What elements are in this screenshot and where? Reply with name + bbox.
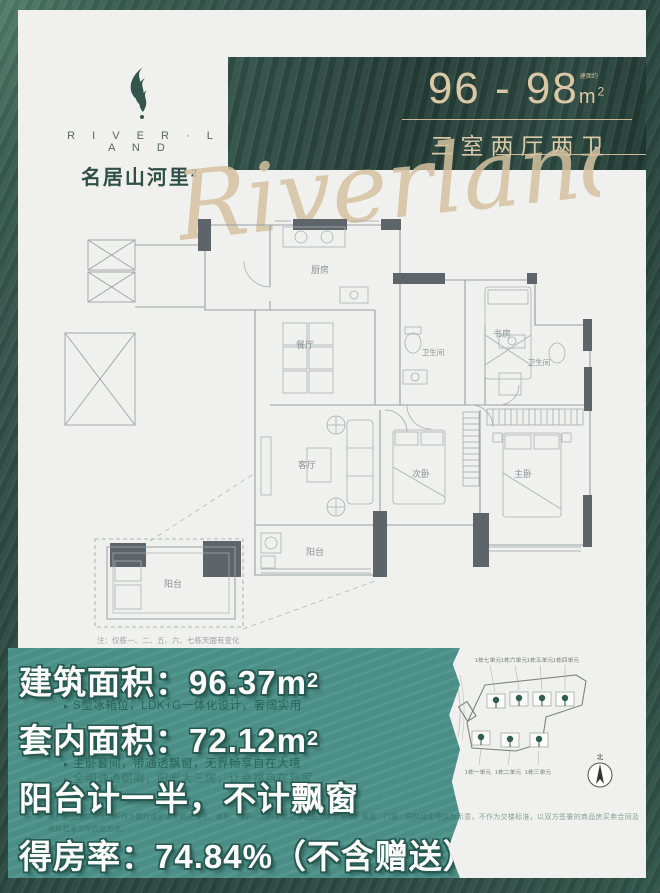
svg-text:北: 北 [597, 753, 604, 761]
unit-label: 1栋二单元 [495, 768, 522, 776]
room-label-living: 客厅 [298, 459, 316, 470]
area-unit: 建面约m2 [579, 86, 606, 108]
room-label-study: 书房 [493, 328, 511, 339]
room-label-kitchen: 厨房 [311, 264, 329, 275]
unit-label: 1栋六单元 [501, 656, 528, 664]
door-arcs [244, 261, 519, 432]
site-entrance [459, 702, 476, 722]
area-note: 建面约 [580, 74, 598, 80]
header-banner-content: 96 - 98建面约m2 三室两厅两卫 [402, 67, 632, 161]
stat-bullet-1: ▸S型冰箱位，LDK+G一体化设计，奢阔实用 [64, 697, 302, 713]
unit-label: 1栋一单元 [465, 768, 492, 776]
gold-divider-2 [496, 154, 646, 155]
site-road-2 [460, 675, 464, 740]
bullet-arrow-icon: ▸ [64, 701, 69, 711]
flame-leaf-icon [118, 66, 162, 124]
stat-bullet-2: ▸主卧套间，带通透飘窗，无界畅享自在大境 [64, 755, 301, 771]
room-label-master: 主卧 [514, 468, 532, 479]
gold-divider [402, 119, 632, 120]
stat-efficiency: 得房率：74.84%（不含赠送） [19, 830, 477, 878]
stats-panel: 建筑面积：96.37m2 ▸S型冰箱位，LDK+G一体化设计，奢阔实用 套内面积… [8, 648, 460, 878]
room-label-bedroom2: 次卧 [412, 468, 430, 479]
disclaimer: 本户型图仅供参考，不作为要约或承诺，相关尺寸、面积、布局以政府最终批准图纸为准；… [48, 812, 640, 836]
compass-icon: 北 [588, 753, 612, 787]
room-label-balcony: 阳台 [306, 546, 324, 557]
bullet-arrow-icon: ▸ [64, 759, 69, 769]
brand-name-cn: 名居山河里2 [50, 161, 230, 190]
wall-blocks [110, 219, 592, 577]
room-labels: 厨房 餐厅 卫生间 书房 卫生间 客厅 次卧 主卧 阳台 阳台 [164, 264, 550, 589]
header-banner: 96 - 98建面约m2 三室两厅两卫 [228, 57, 646, 170]
room-label-dining: 餐厅 [296, 339, 314, 350]
room-label-balcony-detail: 阳台 [164, 578, 182, 589]
poster: R I V E R · L A N D 名居山河里2 96 - 98建面约m2 … [0, 0, 660, 893]
unit-label: 1栋三单元 [525, 768, 552, 776]
room-label-bath1: 卫生间 [422, 347, 445, 357]
site-plan: 1栋七单元 1栋六单元 1栋五单元 1栋四单元 1栋一单元 1栋二单元 1栋三单… [448, 645, 653, 820]
brand-logo: R I V E R · L A N D 名居山河里2 [50, 66, 230, 190]
unit-label: 1栋七单元 [475, 656, 502, 664]
floorplan-note: 注：仅栋一、二、五、六、七栋天面有变化 [97, 635, 240, 645]
brand-name-en: R I V E R · L A N D [50, 130, 230, 154]
building-core [65, 240, 205, 425]
site-buildings [472, 665, 574, 765]
unit-label: 1栋五单元 [527, 656, 554, 664]
site-unit-labels: 1栋七单元 1栋六单元 1栋五单元 1栋四单元 1栋一单元 1栋二单元 1栋三单… [465, 656, 580, 776]
layout-type: 三室两厅两卫 [402, 127, 632, 161]
floor-plan: 厨房 餐厅 卫生间 书房 卫生间 客厅 次卧 主卧 阳台 阳台 注：仅栋一、二、… [55, 215, 630, 647]
unit-label: 1栋四单元 [553, 656, 580, 664]
room-label-bath2: 卫生间 [528, 357, 551, 367]
area-range: 96 - 98建面约m2 [402, 67, 632, 111]
